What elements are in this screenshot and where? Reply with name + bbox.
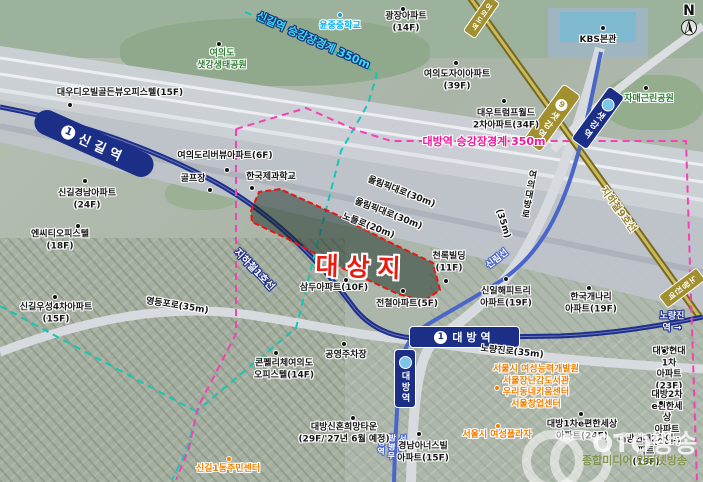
poi-dot <box>495 386 499 390</box>
poi-dot <box>68 103 72 107</box>
place-label-shinhon-town: 대방신혼희망타운 (29F/'27년 6월 예정) <box>298 422 389 445</box>
sillim-line-badge <box>399 356 412 369</box>
compass-north-label: N <box>681 3 697 19</box>
place-label-honorsville-apt: 경남아너스빌 아파트(15F) <box>397 441 449 464</box>
poi-dot <box>587 286 591 290</box>
poi-dot <box>217 42 221 46</box>
poi-dot <box>53 295 57 299</box>
place-label-public-parking: 공영주차장 <box>325 350 366 362</box>
poi-dot <box>601 26 605 30</box>
place-label-shinil-happytree: 신일해피트리 아파트(19F) <box>480 286 532 309</box>
noryangjin-direction-label: 노량진역 → <box>657 311 688 334</box>
poi-dot <box>208 188 212 192</box>
poi-dot <box>401 7 405 11</box>
station-name-daebang-sillim: 대방역 <box>399 371 412 404</box>
place-label-kbs: KBS본관 <box>580 35 617 47</box>
place-label-jeoncheol-apt: 전철아파트(5F) <box>376 299 438 311</box>
line1-badge: 1 <box>59 123 77 141</box>
place-label-trump-world: 대우트럼프월드 2차아파트(34F) <box>473 108 539 131</box>
place-label-bakery-school: 한국제과학교 <box>246 172 296 184</box>
satellite-site-map: 1 신길역 1 대방역 대방역 9 샛강역 샛강역 여의도역 노량진역 지하철1… <box>0 0 703 482</box>
poi-dot <box>662 349 666 353</box>
station-band-daebang-sillim: 대방역 <box>394 349 416 408</box>
watermark-subtitle: 종합미디어 인터넷방송 <box>582 452 687 468</box>
compass-needle-icon <box>681 19 697 36</box>
place-label-ncti-officetel: 엔씨티오피스텔 (18F) <box>31 229 89 252</box>
place-label-golf-range: 골프장 <box>181 174 206 186</box>
poi-dot <box>344 278 348 282</box>
place-label-confelice-officetel: 콘펠리체여의도 오피스텔(14F) <box>254 358 314 381</box>
place-label-community-center: 신길1동주민센터 <box>196 464 260 476</box>
compass: N <box>681 3 697 40</box>
place-label-gyeongnam-apt: 신길경남아파트 (24F) <box>58 188 116 211</box>
station-name-daebang: 대방역 <box>452 329 494 345</box>
place-label-hyundai1-apt: 대방현대1차 아파트(23F) <box>652 347 686 394</box>
poi-dot <box>351 416 355 420</box>
place-label-xi-apt: 여의도자이아파트 (39F) <box>424 69 490 92</box>
map-line-overlay <box>0 0 703 482</box>
target-site-label: 대상지 <box>315 250 409 286</box>
poi-dot <box>342 342 346 346</box>
poi-dot <box>502 99 506 103</box>
poi-dot <box>659 401 663 405</box>
station-band-daebang-line1: 1 대방역 <box>409 326 520 348</box>
poi-dot <box>338 13 342 17</box>
poi-dot <box>227 457 231 461</box>
place-label-gaenari-apt: 한국개나리 아파트(19F) <box>565 292 617 315</box>
place-label-jamae-park: 자매근린공원 <box>624 94 674 106</box>
line1-badge: 1 <box>434 331 447 344</box>
place-label-yunjung-school: 윤중중학교 <box>319 21 360 33</box>
place-label-gwangjang-apt: 광장아파트 (14F) <box>385 11 426 34</box>
poi-dot <box>454 61 458 65</box>
poi-dot <box>444 279 448 283</box>
poi-dot <box>496 424 500 428</box>
place-label-riverview-apt: 여의도리버뷰아파트(6F) <box>177 151 272 163</box>
poi-dot <box>76 224 80 228</box>
place-label-wooseong-apt: 신길우성4차아파트 (15F) <box>20 302 93 325</box>
poi-dot <box>401 289 405 293</box>
daebang-boundary-label: 대방역 승강장경계 350m <box>422 135 545 149</box>
poi-dot <box>504 277 508 281</box>
place-label-saetgang-park: 여의도 샛강생태공원 <box>197 48 247 71</box>
poi-dot <box>274 351 278 355</box>
place-label-samdu-apt: 삼두아파트(10F) <box>300 283 368 295</box>
poi-dot <box>83 179 87 183</box>
poi-dot <box>225 168 229 172</box>
poi-dot <box>417 432 421 436</box>
place-label-cheonrok-bldg: 천록빌딩 (11F) <box>432 251 465 274</box>
place-label-women-dev-center: 서울시 여성능력개발원 서울장난감도서관 우리동네키움센터 서울창업센터 <box>493 365 579 412</box>
place-label-women-plaza: 서울시 여성플라자 <box>462 430 531 442</box>
poi-dot <box>644 86 648 90</box>
poi-dot <box>579 412 583 416</box>
poi-dot <box>250 186 254 190</box>
place-label-daewoo-dioville: 대우디오빌골든뷰오피스텔(15F) <box>57 88 183 100</box>
